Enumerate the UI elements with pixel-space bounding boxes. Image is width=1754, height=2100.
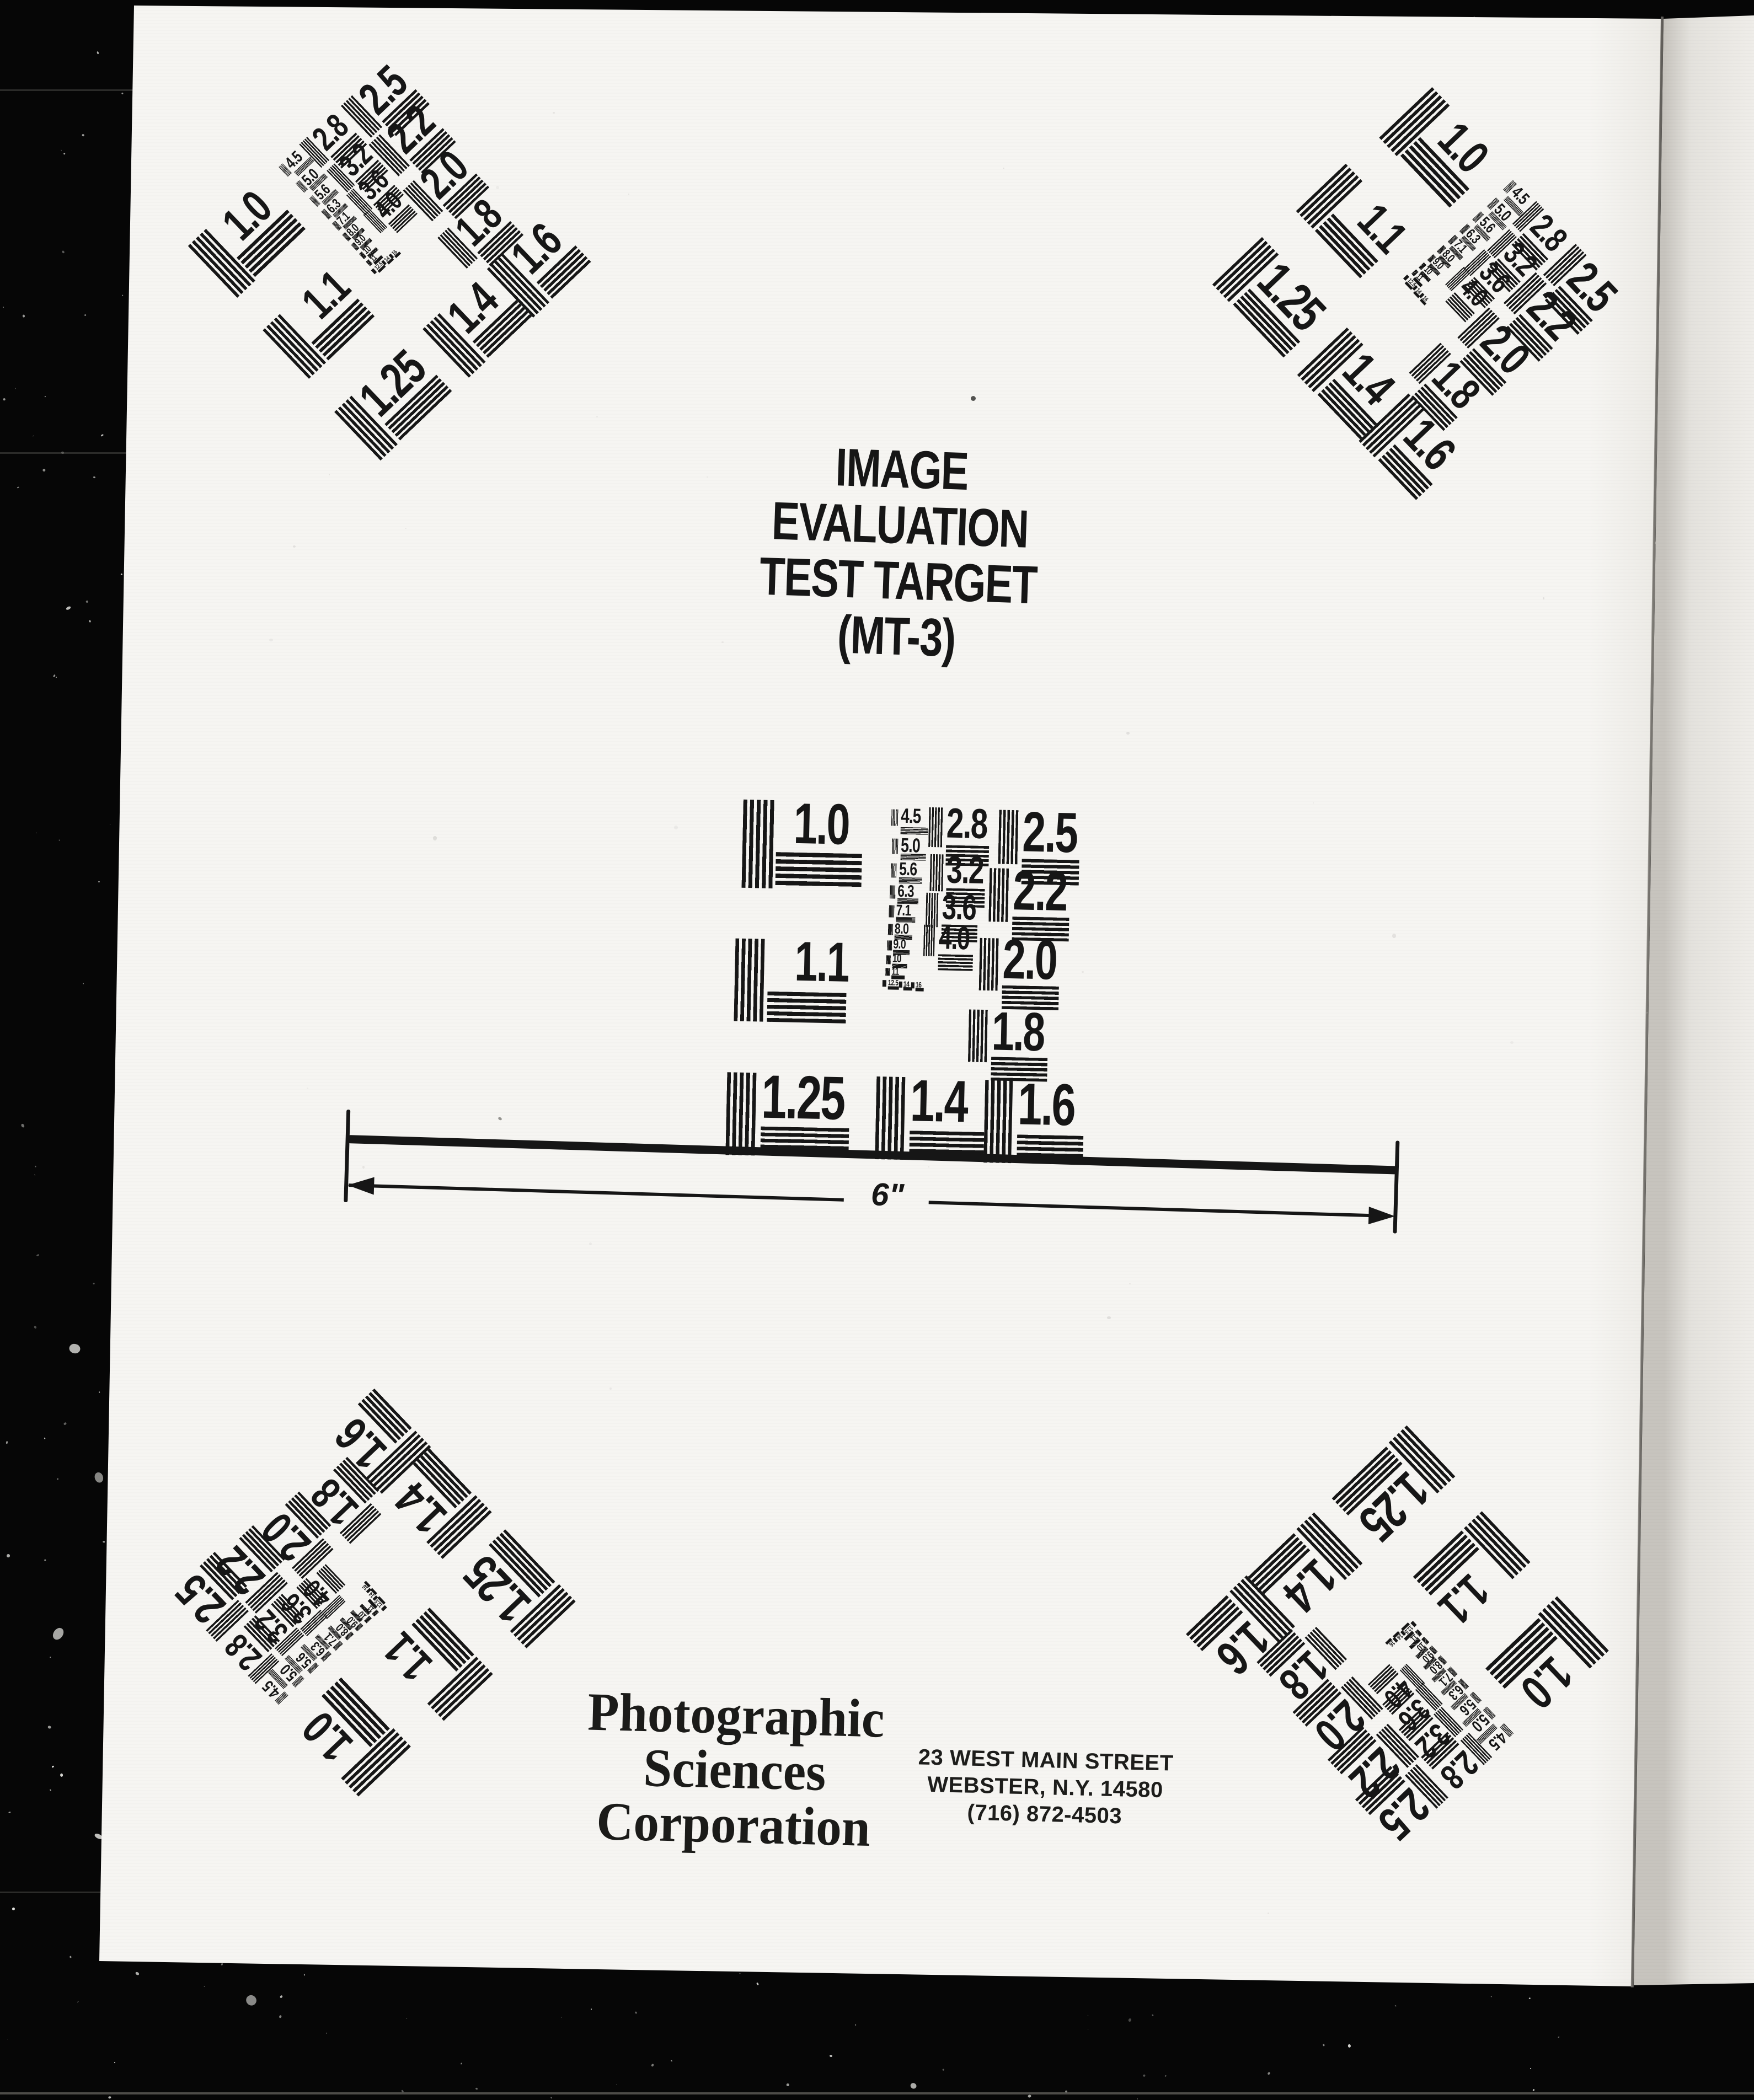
- vertical-bars: [725, 1072, 756, 1155]
- horizontal-bars: [767, 992, 846, 1024]
- horizontal-bars: [938, 954, 973, 971]
- page-title: IMAGE EVALUATION TEST TARGET (MT-3): [725, 436, 1072, 669]
- vertical-bars: [888, 924, 893, 935]
- horizontal-bars: [916, 988, 924, 992]
- resolution-number: 5.0: [901, 835, 921, 855]
- vertical-bars: [899, 982, 903, 988]
- vertical-bars: [892, 838, 899, 854]
- vertical-bars: [891, 809, 899, 826]
- resolution-number: 12.5: [888, 979, 899, 987]
- resolution-number: 1.6: [1017, 1074, 1075, 1134]
- vertical-bars: [968, 1009, 988, 1062]
- vertical-bars: [883, 980, 886, 987]
- resolution-number: 2.2: [1012, 863, 1067, 919]
- vertical-bars: [875, 1076, 905, 1160]
- vertical-bars: [926, 893, 938, 927]
- horizontal-bars: [991, 1057, 1047, 1081]
- title-line-2: TEST TARGET (MT-3): [725, 547, 1069, 669]
- vertical-bars: [929, 854, 943, 891]
- resolution-number: 6.3: [897, 882, 914, 899]
- scale-arrow-line-right: [929, 1201, 1373, 1217]
- resolution-number: 4.5: [901, 806, 921, 827]
- horizontal-bars: [776, 852, 862, 887]
- left-arrowhead-icon: [347, 1176, 375, 1194]
- title-line-1: IMAGE EVALUATION: [729, 436, 1073, 558]
- test-target-top-right: 1.01.11.251.41.62.52.22.01.82.83.23.64.0…: [1203, 71, 1637, 505]
- resolution-number: 3.2: [946, 850, 984, 890]
- vertical-bars: [928, 807, 943, 848]
- vertical-bars: [890, 885, 895, 898]
- vertical-bars: [923, 925, 935, 956]
- resolution-number: 5.6: [899, 860, 917, 879]
- vertical-bars: [983, 1080, 1013, 1163]
- company-name: Photographic Sciences Corporation: [528, 1684, 941, 1857]
- resolution-number: 1.4: [910, 1071, 967, 1131]
- vertical-bars: [979, 938, 999, 991]
- test-target-bottom-left: 1.01.11.251.41.62.52.22.01.82.83.23.64.0…: [157, 1384, 585, 1812]
- vertical-bars: [734, 939, 764, 1022]
- vertical-bars: [891, 863, 897, 877]
- test-target-top-left: 1.01.11.251.41.62.52.22.01.82.83.23.64.0…: [172, 47, 596, 470]
- resolution-number: 2.5: [1022, 803, 1078, 861]
- vertical-bars: [886, 955, 891, 964]
- test-target-center: 1.01.11.251.41.62.52.22.01.82.83.23.64.0…: [713, 795, 1096, 1166]
- resolution-number: 2.8: [946, 803, 987, 846]
- page-content: IMAGE EVALUATION TEST TARGET (MT-3) 6" P…: [0, 0, 1754, 2100]
- horizontal-bars: [1017, 1134, 1083, 1164]
- scale-arrow-line-left: [349, 1183, 844, 1202]
- resolution-number: 1.8: [991, 1004, 1045, 1060]
- vertical-bars: [988, 868, 1009, 922]
- company-line-3: Corporation: [528, 1793, 938, 1857]
- horizontal-bars: [760, 1127, 849, 1156]
- resolution-number: 1.25: [761, 1066, 845, 1129]
- right-arrowhead-icon: [1368, 1207, 1395, 1225]
- horizontal-bars: [909, 1131, 984, 1160]
- horizontal-bars: [888, 986, 899, 990]
- vertical-bars: [887, 940, 892, 950]
- test-target-bottom-right: 1.01.11.251.41.62.52.22.01.82.83.23.64.0…: [1181, 1416, 1625, 1860]
- resolution-number: 1.1: [794, 934, 849, 990]
- ink-speck: [971, 396, 976, 401]
- vertical-bars: [998, 810, 1018, 865]
- vertical-bars: [889, 905, 894, 917]
- resolution-number: 4.0: [938, 922, 970, 955]
- vertical-bars: [741, 800, 774, 888]
- resolution-number: 1.0: [793, 795, 849, 854]
- company-address: 23 WEST MAIN STREET WEBSTER, N.Y. 14580 …: [912, 1744, 1178, 1831]
- vertical-bars: [911, 982, 915, 988]
- vertical-bars: [885, 968, 890, 976]
- scale-length-label: 6": [851, 1175, 924, 1214]
- resolution-number: 7.1: [896, 903, 911, 918]
- company-line-1: Photographic: [531, 1684, 941, 1748]
- resolution-number: 2.0: [1002, 931, 1057, 988]
